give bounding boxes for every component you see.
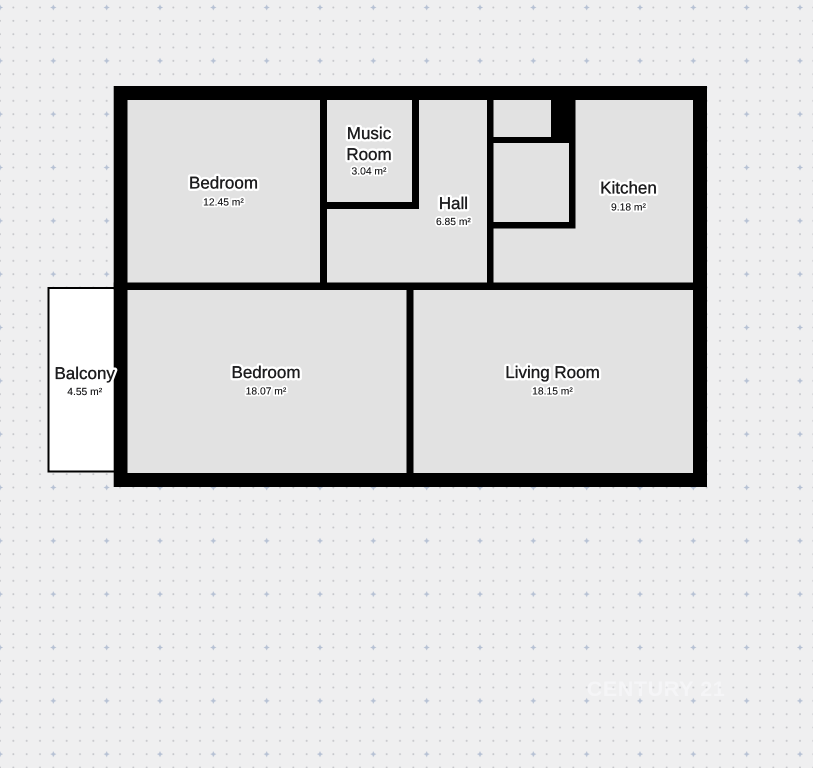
svg-text:Kitchen: Kitchen (600, 178, 657, 197)
svg-text:Music: Music (347, 124, 392, 143)
svg-text:Living Room: Living Room (505, 363, 600, 382)
svg-text:12.45 m²: 12.45 m² (203, 197, 244, 208)
svg-text:CENTURY 21: CENTURY 21 (587, 677, 726, 701)
svg-text:9.18 m²: 9.18 m² (611, 202, 646, 213)
svg-text:3.04 m²: 3.04 m² (352, 166, 387, 177)
svg-text:Room: Room (346, 145, 391, 164)
svg-text:6.85 m²: 6.85 m² (436, 217, 471, 228)
svg-text:18.07 m²: 18.07 m² (246, 387, 287, 398)
svg-text:Bedroom: Bedroom (232, 363, 301, 382)
svg-text:Balcony: Balcony (54, 364, 115, 383)
svg-text:4.55 m²: 4.55 m² (67, 387, 102, 398)
svg-text:Bedroom: Bedroom (189, 173, 258, 192)
svg-text:18.15 m²: 18.15 m² (532, 387, 573, 398)
svg-text:Hall: Hall (439, 194, 468, 213)
